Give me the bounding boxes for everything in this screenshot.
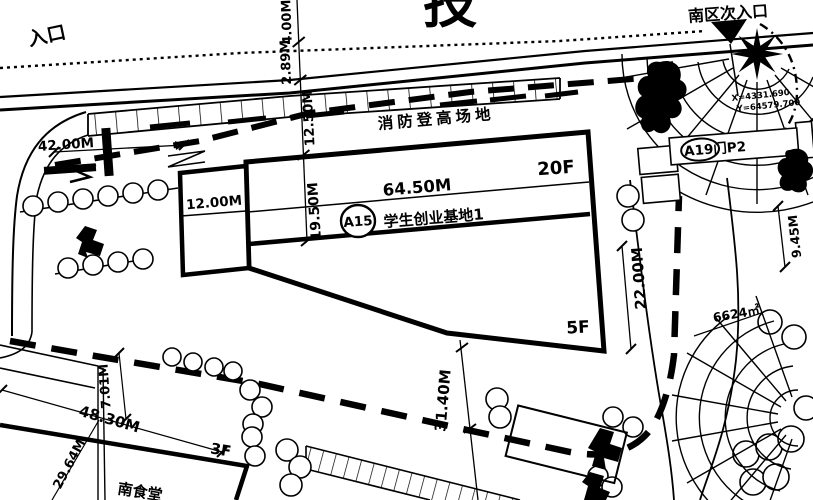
dim-29-64: 29.64M <box>51 437 90 492</box>
dim-2-89: 2.89M <box>278 39 295 85</box>
area-label: 6624㎡ <box>694 302 764 336</box>
dim-9-45: 9.45M <box>785 214 804 259</box>
dim-22-00: 22.00M <box>628 247 650 310</box>
building-a15-west-wing <box>180 166 249 275</box>
dim-12-50: 12.50M <box>300 90 319 147</box>
top-title-partial: 技 <box>423 0 477 35</box>
dim-42-00: 42.00M <box>37 135 94 155</box>
dimension-22: 22.00M <box>617 241 650 354</box>
a15-podium-floors: 5F <box>566 317 590 338</box>
dimension-31: 31.40M <box>431 340 478 500</box>
building-a15: A15 学生创业基地1 64.50M 20F 5F 12.00M <box>180 132 604 351</box>
dimension-9: 9.45M <box>773 201 804 272</box>
entrance-left-label: 入口 <box>26 21 68 50</box>
south-parking-band <box>306 446 520 500</box>
right-curved-road <box>630 178 738 500</box>
site-plan-canvas: A15 学生创业基地1 64.50M 20F 5F 12.00M 消防登高场地 … <box>0 0 813 500</box>
gate-a19-label: A19门P2 <box>669 128 799 165</box>
sculpture-silhouette <box>588 428 622 470</box>
dim-4-00: 4.00M <box>279 0 296 45</box>
canteen-building: 48.30M 29.64M 3F 南食堂 <box>0 385 247 500</box>
site-plan: A15 学生创业基地1 64.50M 20F 5F 12.00M 消防登高场地 … <box>0 0 813 500</box>
dim-31-40: 31.40M <box>431 369 454 433</box>
canteen-name: 南食堂 <box>116 480 163 500</box>
dim-7-01: 7.01M <box>96 363 114 409</box>
a15-floors: 20F <box>537 157 576 181</box>
plaza-center-star <box>731 28 783 80</box>
a15-code: A15 <box>343 213 373 231</box>
canteen-floors: 3F <box>209 439 232 460</box>
coordinate-label: X=4331.690 Y=64579.700 <box>731 87 801 115</box>
